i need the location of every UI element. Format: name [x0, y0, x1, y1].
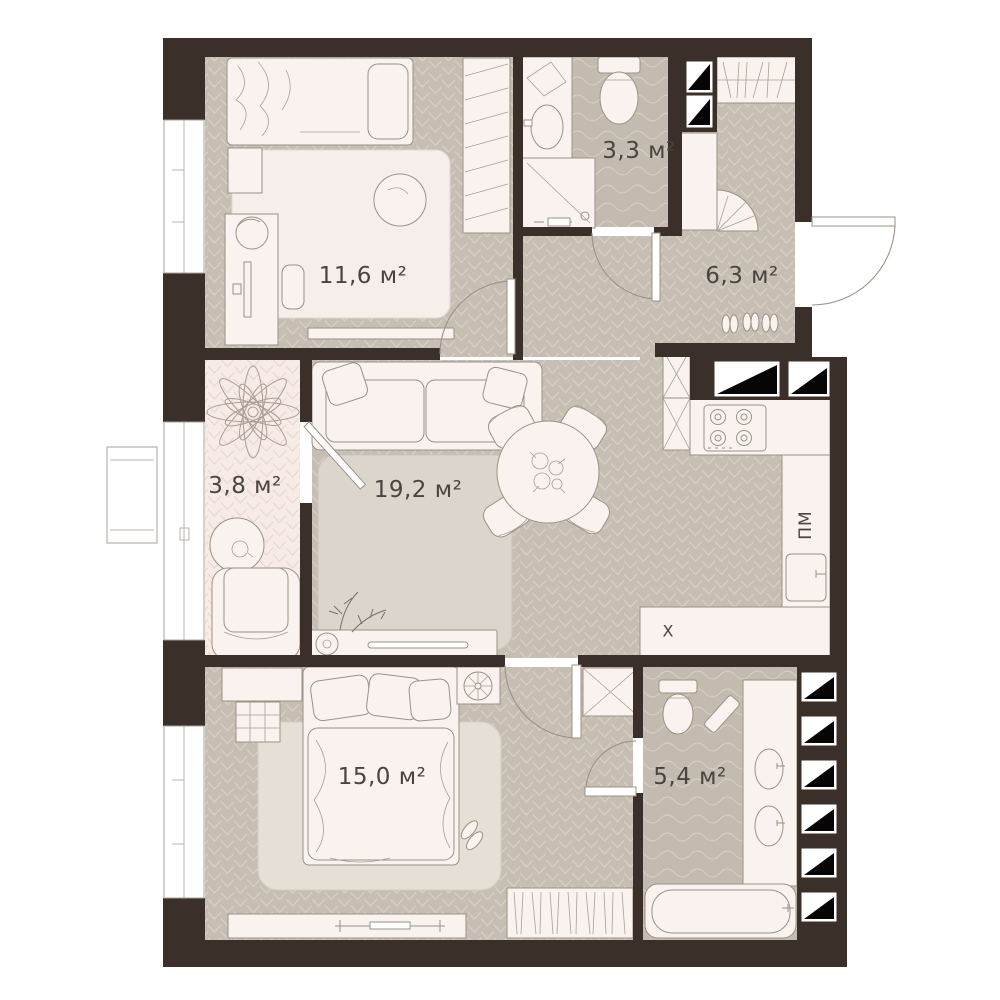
desk [225, 214, 278, 345]
room-label-living-room: 19,2 м² [374, 477, 463, 503]
pouf [374, 174, 426, 226]
coat-rack [717, 57, 800, 103]
room-label-bathroom-1: 3,3 м² [602, 138, 675, 164]
dresser [222, 668, 302, 701]
windows [107, 120, 204, 898]
armchair [212, 568, 300, 660]
bench-console [228, 914, 466, 938]
floor-plan-drawing [0, 0, 1000, 1000]
tall-cabinet [663, 350, 690, 450]
wall-shelf [308, 328, 454, 339]
floor-plan-canvas: 11,6 м² 3,3 м² 6,3 м² 3,8 м² 19,2 м² 15,… [0, 0, 1000, 1000]
bathroom-shaft-column [797, 667, 847, 940]
tv-console [310, 630, 497, 657]
fridge-label: Х [663, 622, 674, 641]
nightstand [228, 148, 262, 193]
bathtub [645, 884, 796, 938]
shower [522, 158, 595, 228]
window-bedroom-1 [164, 120, 204, 273]
room-label-hallway: 6,3 м² [705, 263, 778, 289]
room-label-bedroom-2: 15,0 м² [338, 764, 427, 790]
sink-1 [531, 105, 563, 149]
kitchen-shaft [690, 357, 847, 400]
dining-table [497, 421, 599, 523]
hall-cabinet [681, 133, 717, 230]
wardrobe-bedroom-1 [463, 58, 510, 233]
room-label-loggia: 3,8 м² [208, 473, 281, 499]
window-loggia [164, 422, 204, 640]
entry-door [812, 217, 895, 305]
desk-chair [282, 265, 304, 309]
vanity-2 [743, 680, 797, 886]
storage-box [236, 702, 280, 742]
cabinet-x [583, 668, 638, 716]
window-bedroom-2 [164, 726, 204, 898]
room-label-bedroom-1: 11,6 м² [319, 263, 408, 289]
toilet-1 [598, 57, 640, 124]
counter-top [690, 397, 830, 455]
hall-shaft [682, 57, 717, 132]
ac-basket [107, 447, 157, 543]
faucet-1 [524, 120, 532, 126]
single-bed [227, 58, 413, 145]
dishwasher-label: ПМ [796, 510, 816, 539]
built-in-closet [507, 888, 633, 938]
room-label-bathroom-2: 5,4 м² [653, 764, 726, 790]
nightstand-fan [457, 667, 500, 704]
floor-hallway-lower [440, 236, 795, 357]
side-table [210, 518, 264, 572]
